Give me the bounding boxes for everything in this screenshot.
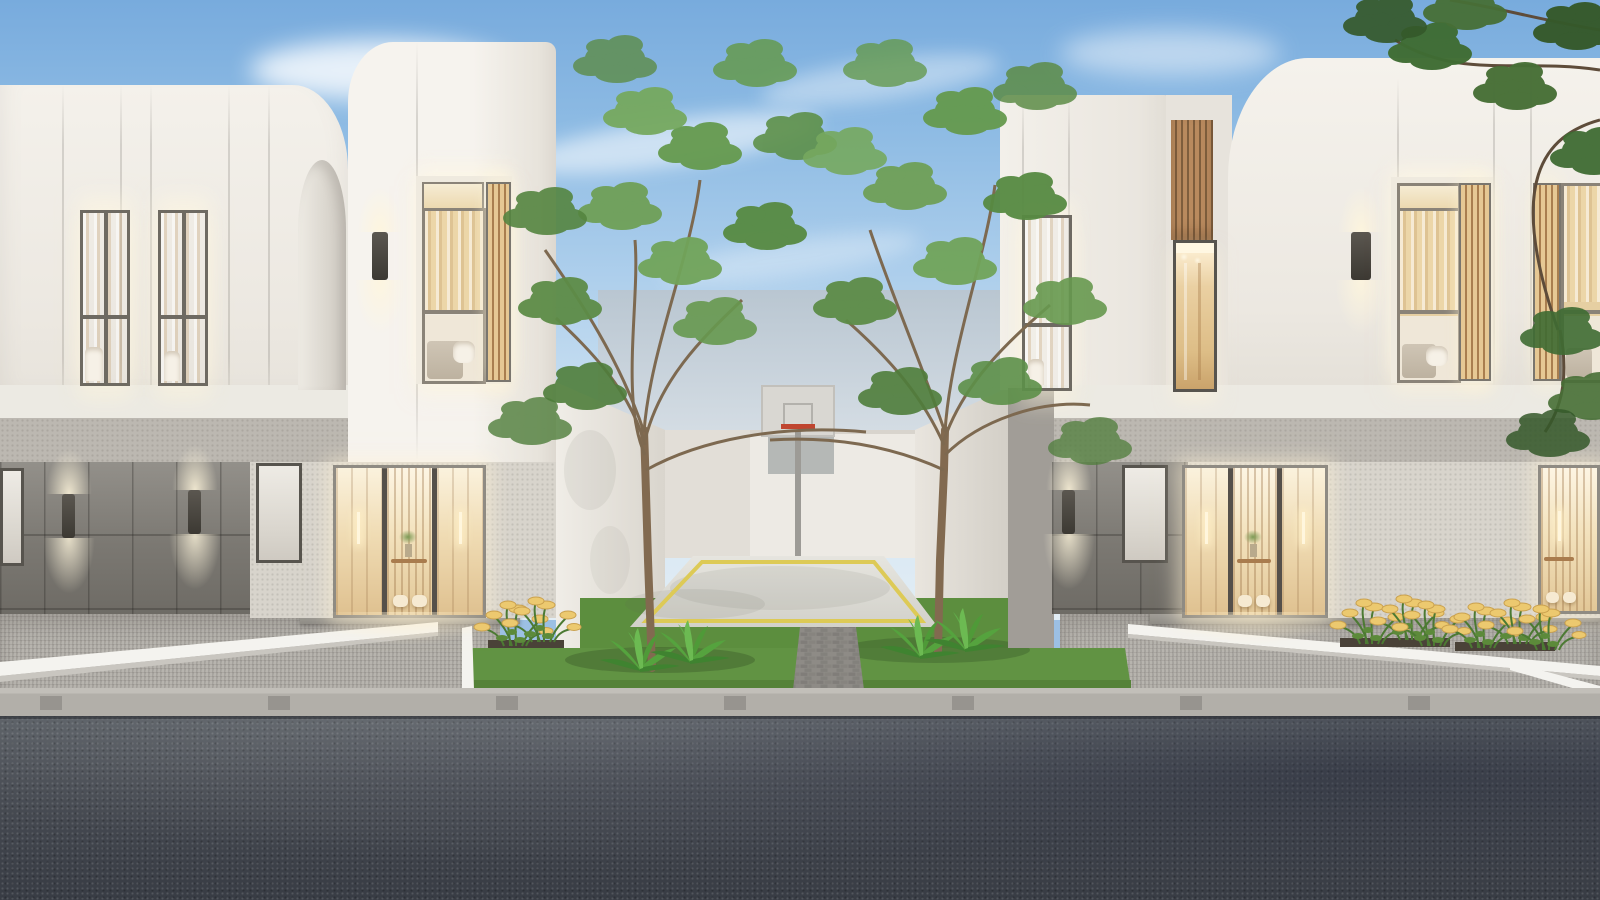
courtyard-tree-right xyxy=(770,39,1132,652)
fern xyxy=(600,628,680,672)
courtyard-tree-left xyxy=(488,35,866,668)
fern xyxy=(880,615,960,659)
vegetation xyxy=(0,0,1600,900)
overhanging-tree xyxy=(1343,0,1600,457)
flower-bed xyxy=(1330,595,1471,647)
flower-bed xyxy=(1442,599,1586,651)
flower-bed xyxy=(474,597,581,648)
architectural-render xyxy=(0,0,1600,900)
